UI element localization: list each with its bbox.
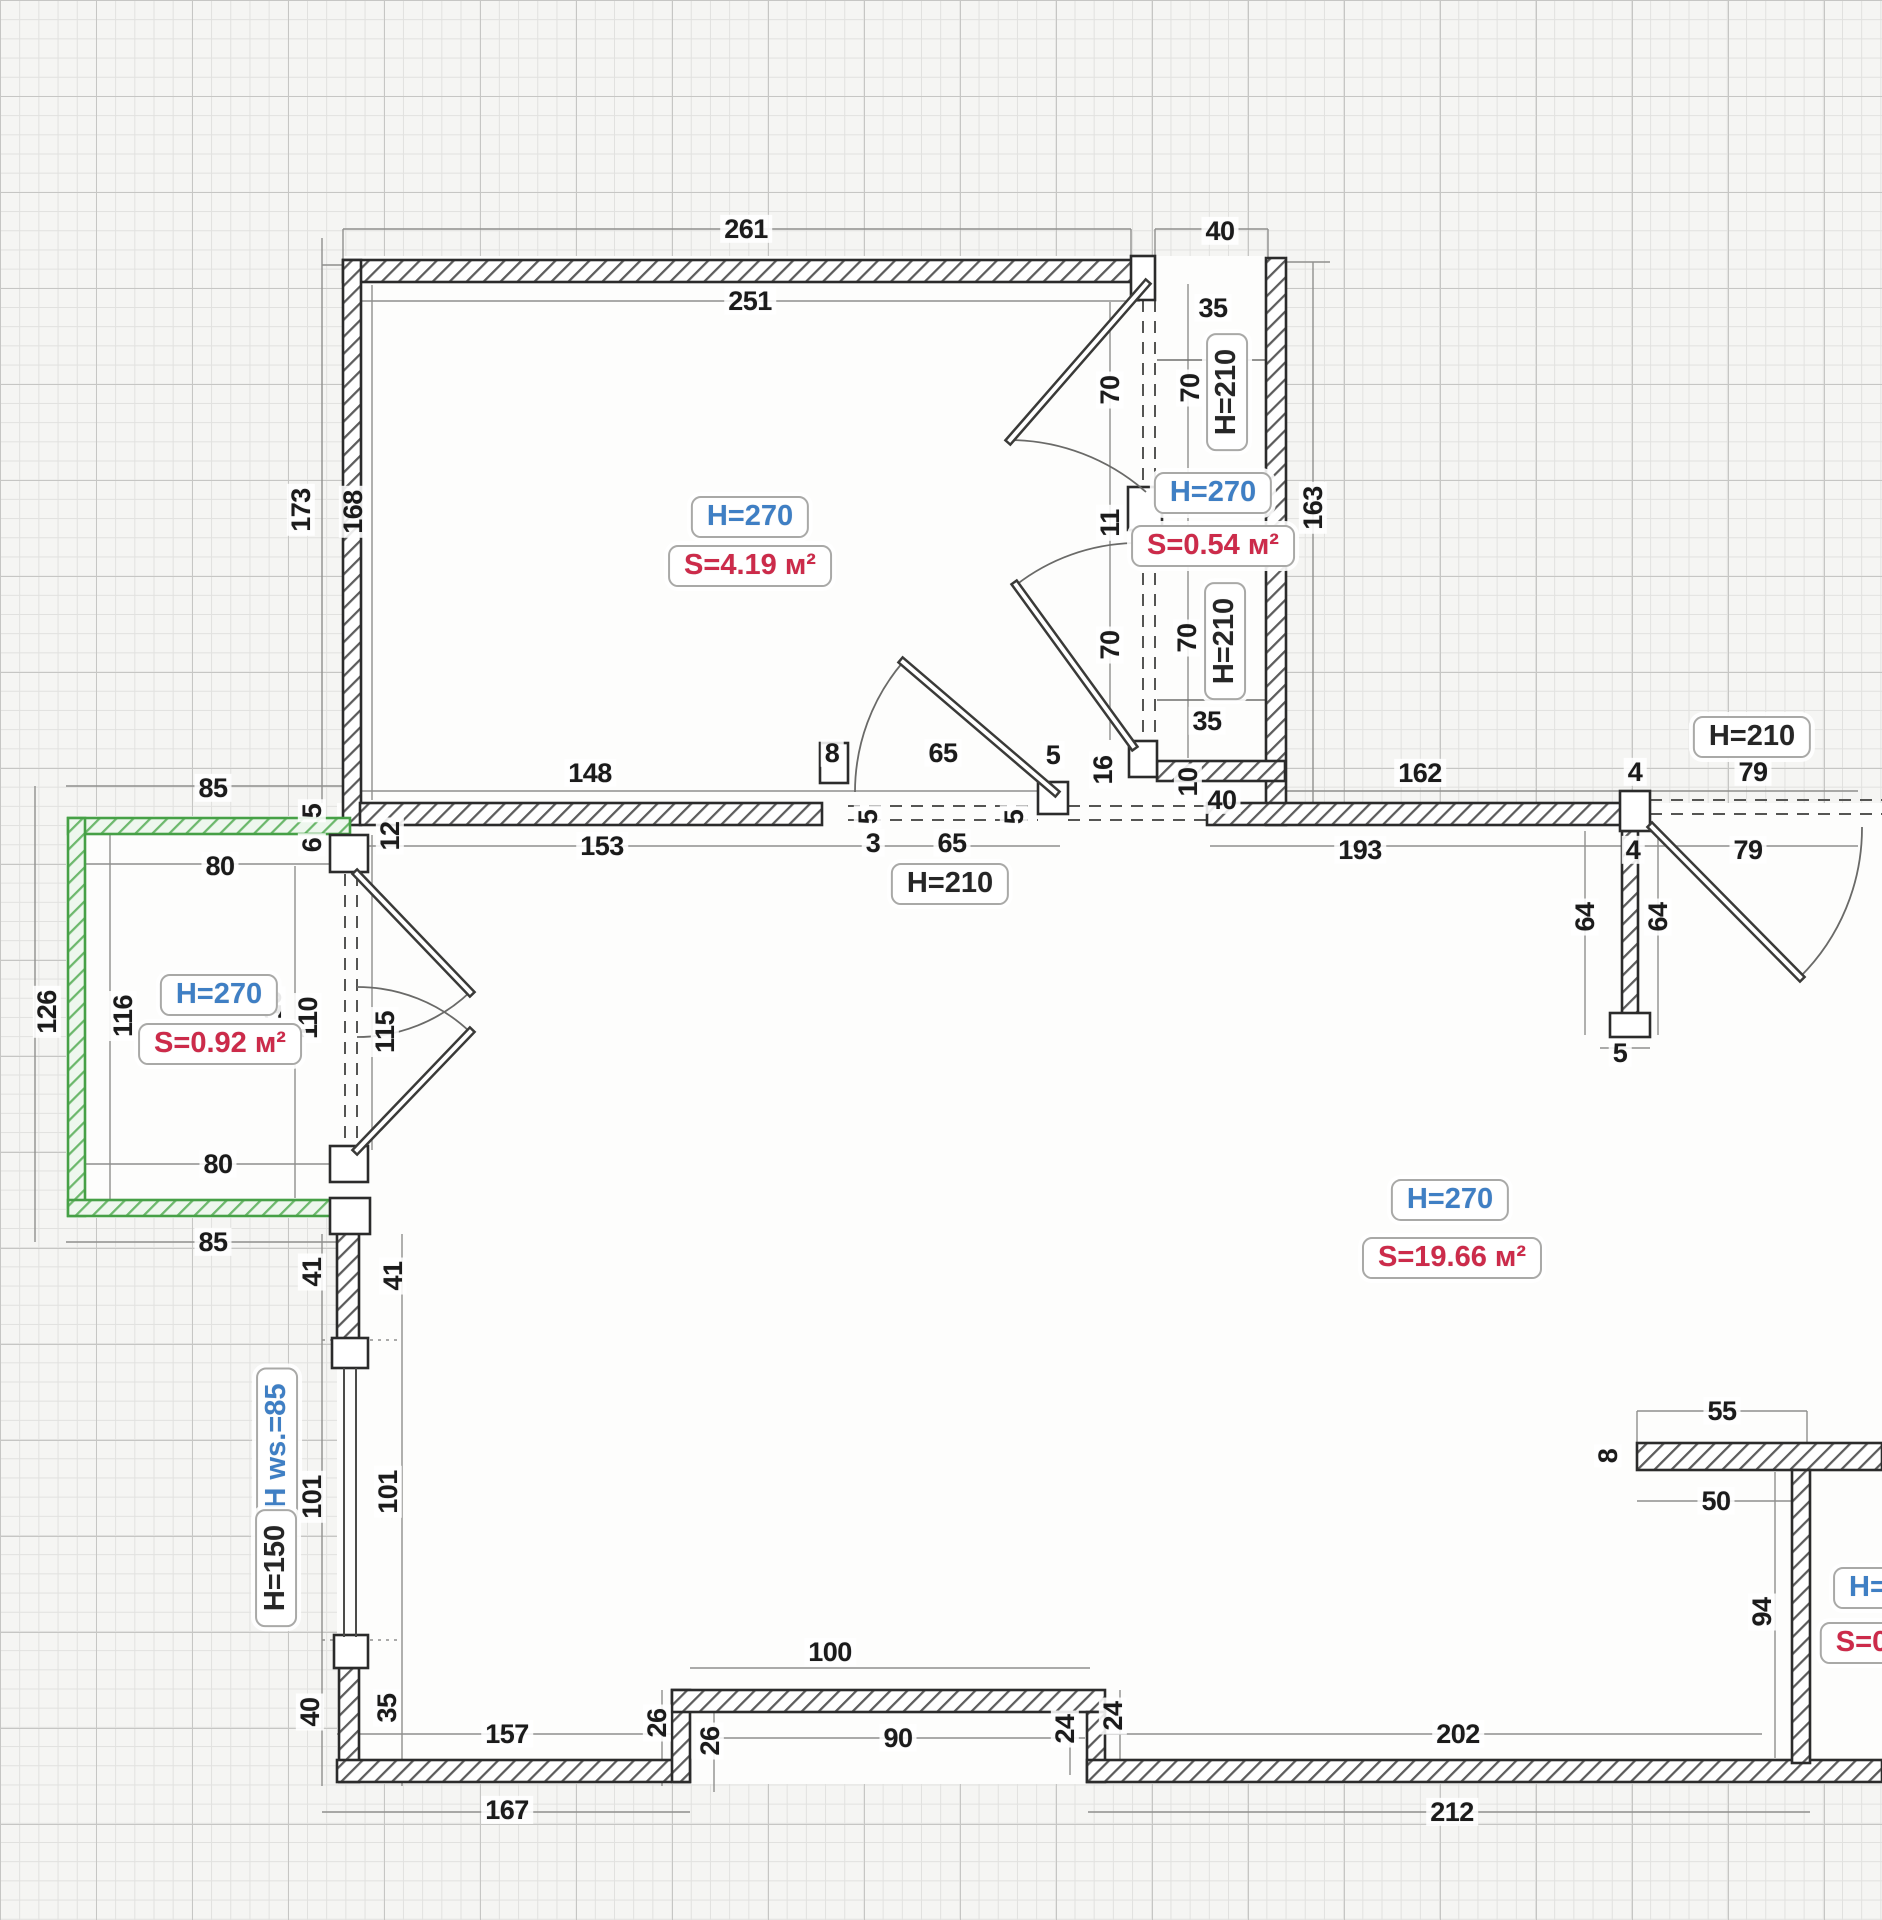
wall-bump-top [672,1690,1105,1712]
balcony-floor [66,816,352,1218]
jamb-65-door-left [820,743,848,783]
balcony-jamb-bottom [330,1146,368,1182]
main-room-floor [337,803,1882,1784]
window-block-top [332,1338,368,1368]
floor-plan-canvas: 2614025117316835707011707035163148865515… [0,0,1882,1920]
stub-top-block [1620,791,1650,831]
wall-left-lower-1 [337,1232,359,1340]
wall-left-top [343,260,361,825]
wall-bottom-right [1087,1760,1882,1782]
wall-closet-bottom [1157,761,1285,781]
wall-stub [1622,831,1638,1015]
wall-right-outer [1266,258,1286,825]
wall-br-stub-horizontal [1637,1443,1882,1470]
wall-top [343,260,1150,282]
balcony-jamb-top [330,835,368,872]
top-room-floor [343,256,1286,825]
wall-br-stub-vertical [1792,1470,1810,1763]
balcony-wall-top [68,818,350,834]
wall-dividing-left [360,803,822,825]
balcony-corner-block [330,1198,370,1234]
window-block-bottom [334,1635,368,1668]
balcony-wall-left [68,818,85,1216]
balcony-wall-bottom [68,1200,350,1216]
wall-bottom-left [337,1760,690,1782]
floor-plan-drawing [0,0,1882,1920]
wall-dividing-right [1207,803,1622,825]
closet-center-post [1128,487,1162,530]
stub-end-block [1610,1013,1650,1037]
